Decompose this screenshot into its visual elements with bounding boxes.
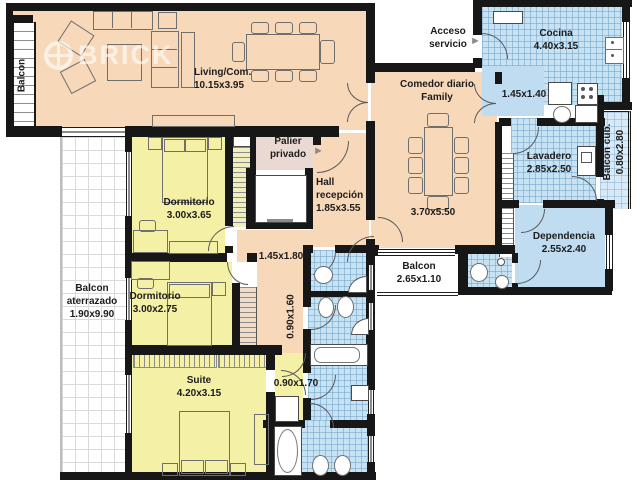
burner-dot: [589, 87, 593, 91]
wall-segment: [373, 63, 475, 72]
balcony-railing: [377, 292, 458, 296]
room-name: Balcon cub.: [601, 122, 614, 182]
dresser: [169, 241, 218, 254]
elevator-door: [267, 219, 293, 222]
room-name: Balcon: [377, 260, 461, 273]
desk: [133, 230, 168, 253]
closet-divider: [256, 287, 257, 345]
toilet: [314, 266, 333, 284]
window: [368, 265, 374, 290]
wall-segment: [497, 200, 519, 208]
kitchen-sink-divider: [605, 49, 622, 50]
room-label-cocina: Cocina 4.40x3.15: [506, 27, 606, 53]
window: [62, 127, 127, 137]
wall-segment: [6, 3, 372, 11]
toilet: [470, 263, 488, 282]
bidet: [318, 297, 334, 318]
chair: [408, 137, 423, 154]
wall-segment: [475, 0, 632, 7]
chair: [275, 22, 293, 34]
dresser: [254, 414, 269, 465]
room-label-balcon-top: Balcon: [16, 48, 29, 104]
passage-dims: 0.90x1.70: [256, 377, 336, 390]
room-label-dormitorio-1: Dormitorio 3.00x3.65: [139, 196, 239, 222]
entry-arrow-icon: ►: [313, 146, 324, 156]
passage-dims: 1.45x1.40: [484, 88, 564, 101]
room-dims: 2.55x2.40: [514, 243, 614, 256]
chair: [232, 42, 245, 62]
entry-arrow-icon: ►: [470, 36, 481, 46]
window: [126, 375, 132, 433]
wall-segment: [232, 283, 240, 348]
wall-segment: [266, 345, 280, 355]
wall-segment: [266, 355, 275, 370]
room-dims: 1.85x3.55: [316, 202, 363, 215]
wall-segment: [367, 347, 375, 368]
room-label-balcon-servicio: Balcon 2.65x1.10: [377, 260, 461, 286]
wall-segment: [495, 122, 502, 253]
vanity-sink: [351, 385, 369, 401]
tv-unit: [181, 32, 195, 88]
room-dims: 4.20x3.15: [149, 387, 249, 400]
room-name: Cocina: [506, 27, 606, 40]
wall-segment: [458, 287, 612, 295]
toilet: [337, 296, 354, 318]
nightstand: [162, 463, 178, 476]
wall-segment: [499, 118, 511, 126]
chair: [275, 70, 293, 82]
bathtub-basin: [277, 429, 298, 473]
window: [368, 436, 374, 462]
room-name: Family: [377, 91, 497, 104]
room-label-balcon-cubierto: Balcon cub. 0.80x2.80: [601, 122, 627, 182]
sofa-cushion-line: [151, 49, 177, 50]
sofa-cushion-line: [151, 67, 177, 68]
room-label-dependencia: Dependencia 2.55x2.40: [514, 230, 614, 256]
toilet: [312, 455, 329, 476]
room-name: recepción: [316, 189, 363, 202]
wall-segment: [303, 297, 311, 307]
pillow: [185, 139, 206, 152]
floor-plan: Balcon Living/Com. 10.15x3.95 Acceso ser…: [0, 0, 640, 480]
wall-segment: [125, 137, 132, 152]
chair: [408, 177, 423, 194]
wall-segment: [125, 216, 132, 253]
wall-segment: [367, 414, 375, 436]
shower-head-icon: [497, 258, 505, 266]
wall-segment: [125, 353, 132, 375]
wall-segment: [125, 345, 282, 355]
shower: [275, 396, 299, 422]
passage-dims: 0.90x1.60: [285, 289, 298, 345]
burner-dot: [581, 87, 585, 91]
room-name: Dependencia: [514, 230, 614, 243]
chair: [427, 113, 449, 127]
wall-segment: [246, 222, 313, 229]
room-dims: 10.15x3.95: [194, 79, 251, 92]
closet-hatch: [133, 353, 217, 368]
sofa: [151, 31, 179, 88]
faucet-dot: [611, 54, 614, 57]
window: [623, 22, 630, 78]
room-label-living: Living/Com. 10.15x3.95: [194, 66, 251, 92]
room-name: Living/Com.: [194, 66, 251, 79]
room-dims: 3.00x2.75: [105, 303, 205, 316]
room-dims: 2.85x2.50: [499, 163, 599, 176]
round-sink: [553, 106, 571, 123]
sofa: [93, 11, 153, 30]
room-dims-comedor: 3.70x5.50: [393, 206, 473, 219]
wall-segment: [455, 245, 515, 254]
wall-segment: [622, 7, 630, 22]
faucet-dot: [611, 41, 614, 44]
window: [378, 249, 455, 256]
pillow: [181, 460, 204, 474]
side-table: [158, 12, 177, 29]
wall-segment: [622, 78, 630, 104]
room-label-hall: Hall recepción 1.85x3.55: [316, 176, 363, 215]
dining-table: [424, 127, 453, 196]
wall-segment: [366, 121, 375, 220]
sofa-cushion-line: [112, 11, 113, 28]
room-name: Comedor diario: [377, 78, 497, 91]
wall-segment: [512, 283, 518, 291]
wall-segment: [246, 168, 255, 228]
wall-segment: [125, 433, 132, 472]
wall-segment: [330, 420, 368, 428]
room-name: Dormitorio: [139, 196, 239, 209]
coffee-table: [107, 44, 142, 81]
room-name: Dormitorio: [105, 290, 205, 303]
sideboard: [152, 115, 235, 127]
wall-segment: [6, 126, 62, 137]
room-name: Suite: [149, 374, 249, 387]
armchair: [320, 40, 335, 64]
nightstand: [148, 137, 162, 150]
room-label-suite: Suite 4.20x3.15: [149, 374, 249, 400]
chair: [454, 157, 469, 174]
counter-module: [575, 105, 598, 123]
wall-segment: [8, 15, 33, 23]
chair: [408, 157, 423, 174]
elevator: [255, 175, 307, 223]
room-dims: 4.40x3.15: [506, 40, 606, 53]
kitchen-counter: [493, 11, 523, 24]
room-label-lavadero: Lavadero 2.85x2.50: [499, 150, 599, 176]
room-name: Lavadero: [499, 150, 599, 163]
passage-dims: 1.45x1.80: [241, 250, 321, 263]
room-name: Hall: [316, 176, 363, 189]
room-label-dormitorio-2: Dormitorio 3.00x2.75: [105, 290, 205, 316]
closet-hatch: [240, 287, 256, 345]
stove: [577, 83, 598, 105]
kitchen-sink: [605, 37, 624, 64]
chair: [251, 70, 269, 82]
room-dims: 2.65x1.10: [377, 273, 461, 286]
chair: [299, 70, 317, 82]
chair: [299, 22, 317, 34]
burner-dot: [581, 95, 585, 99]
room-label-comedor: Comedor diario Family: [377, 78, 497, 104]
window: [126, 152, 132, 216]
room-dims: 3.00x3.65: [139, 209, 239, 222]
sink: [495, 275, 509, 289]
wall-segment: [125, 320, 132, 345]
nightstand: [208, 137, 222, 150]
closet-hatch: [218, 353, 268, 368]
room-dims: 0.80x2.80: [614, 122, 627, 182]
pillow: [164, 139, 185, 152]
wall-segment: [473, 58, 482, 68]
chair: [251, 22, 269, 34]
nightstand: [212, 282, 226, 296]
chair: [454, 177, 469, 194]
chair: [454, 137, 469, 154]
sofa-cushion-line: [131, 11, 132, 28]
pillow: [205, 460, 228, 474]
nightstand: [230, 463, 246, 476]
bathtub-basin: [314, 347, 360, 363]
bidet: [334, 455, 351, 476]
dining-table: [246, 34, 320, 70]
wall-segment: [600, 102, 632, 110]
burner-dot: [589, 95, 593, 99]
